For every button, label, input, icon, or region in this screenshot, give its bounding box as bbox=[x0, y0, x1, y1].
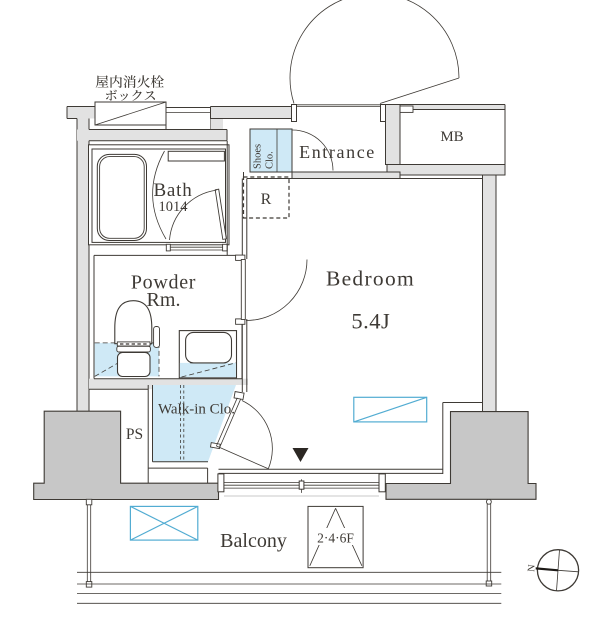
svg-text:Balcony: Balcony bbox=[220, 530, 287, 552]
svg-text:PS: PS bbox=[126, 426, 143, 443]
svg-text:Entrance: Entrance bbox=[299, 142, 376, 162]
svg-text:Walk-in Clo.: Walk-in Clo. bbox=[158, 402, 235, 418]
svg-text:2·4·6F: 2·4·6F bbox=[317, 531, 354, 546]
svg-text:R: R bbox=[261, 191, 272, 208]
svg-text:N: N bbox=[526, 564, 538, 572]
svg-text:Bedroom: Bedroom bbox=[326, 267, 415, 291]
svg-text:Rm.: Rm. bbox=[147, 289, 181, 311]
svg-text:5.4J: 5.4J bbox=[351, 309, 390, 334]
svg-text:Bath: Bath bbox=[153, 180, 192, 201]
svg-text:Clo.: Clo. bbox=[265, 151, 276, 169]
svg-text:MB: MB bbox=[440, 129, 463, 145]
svg-text:Shoes: Shoes bbox=[253, 144, 264, 169]
